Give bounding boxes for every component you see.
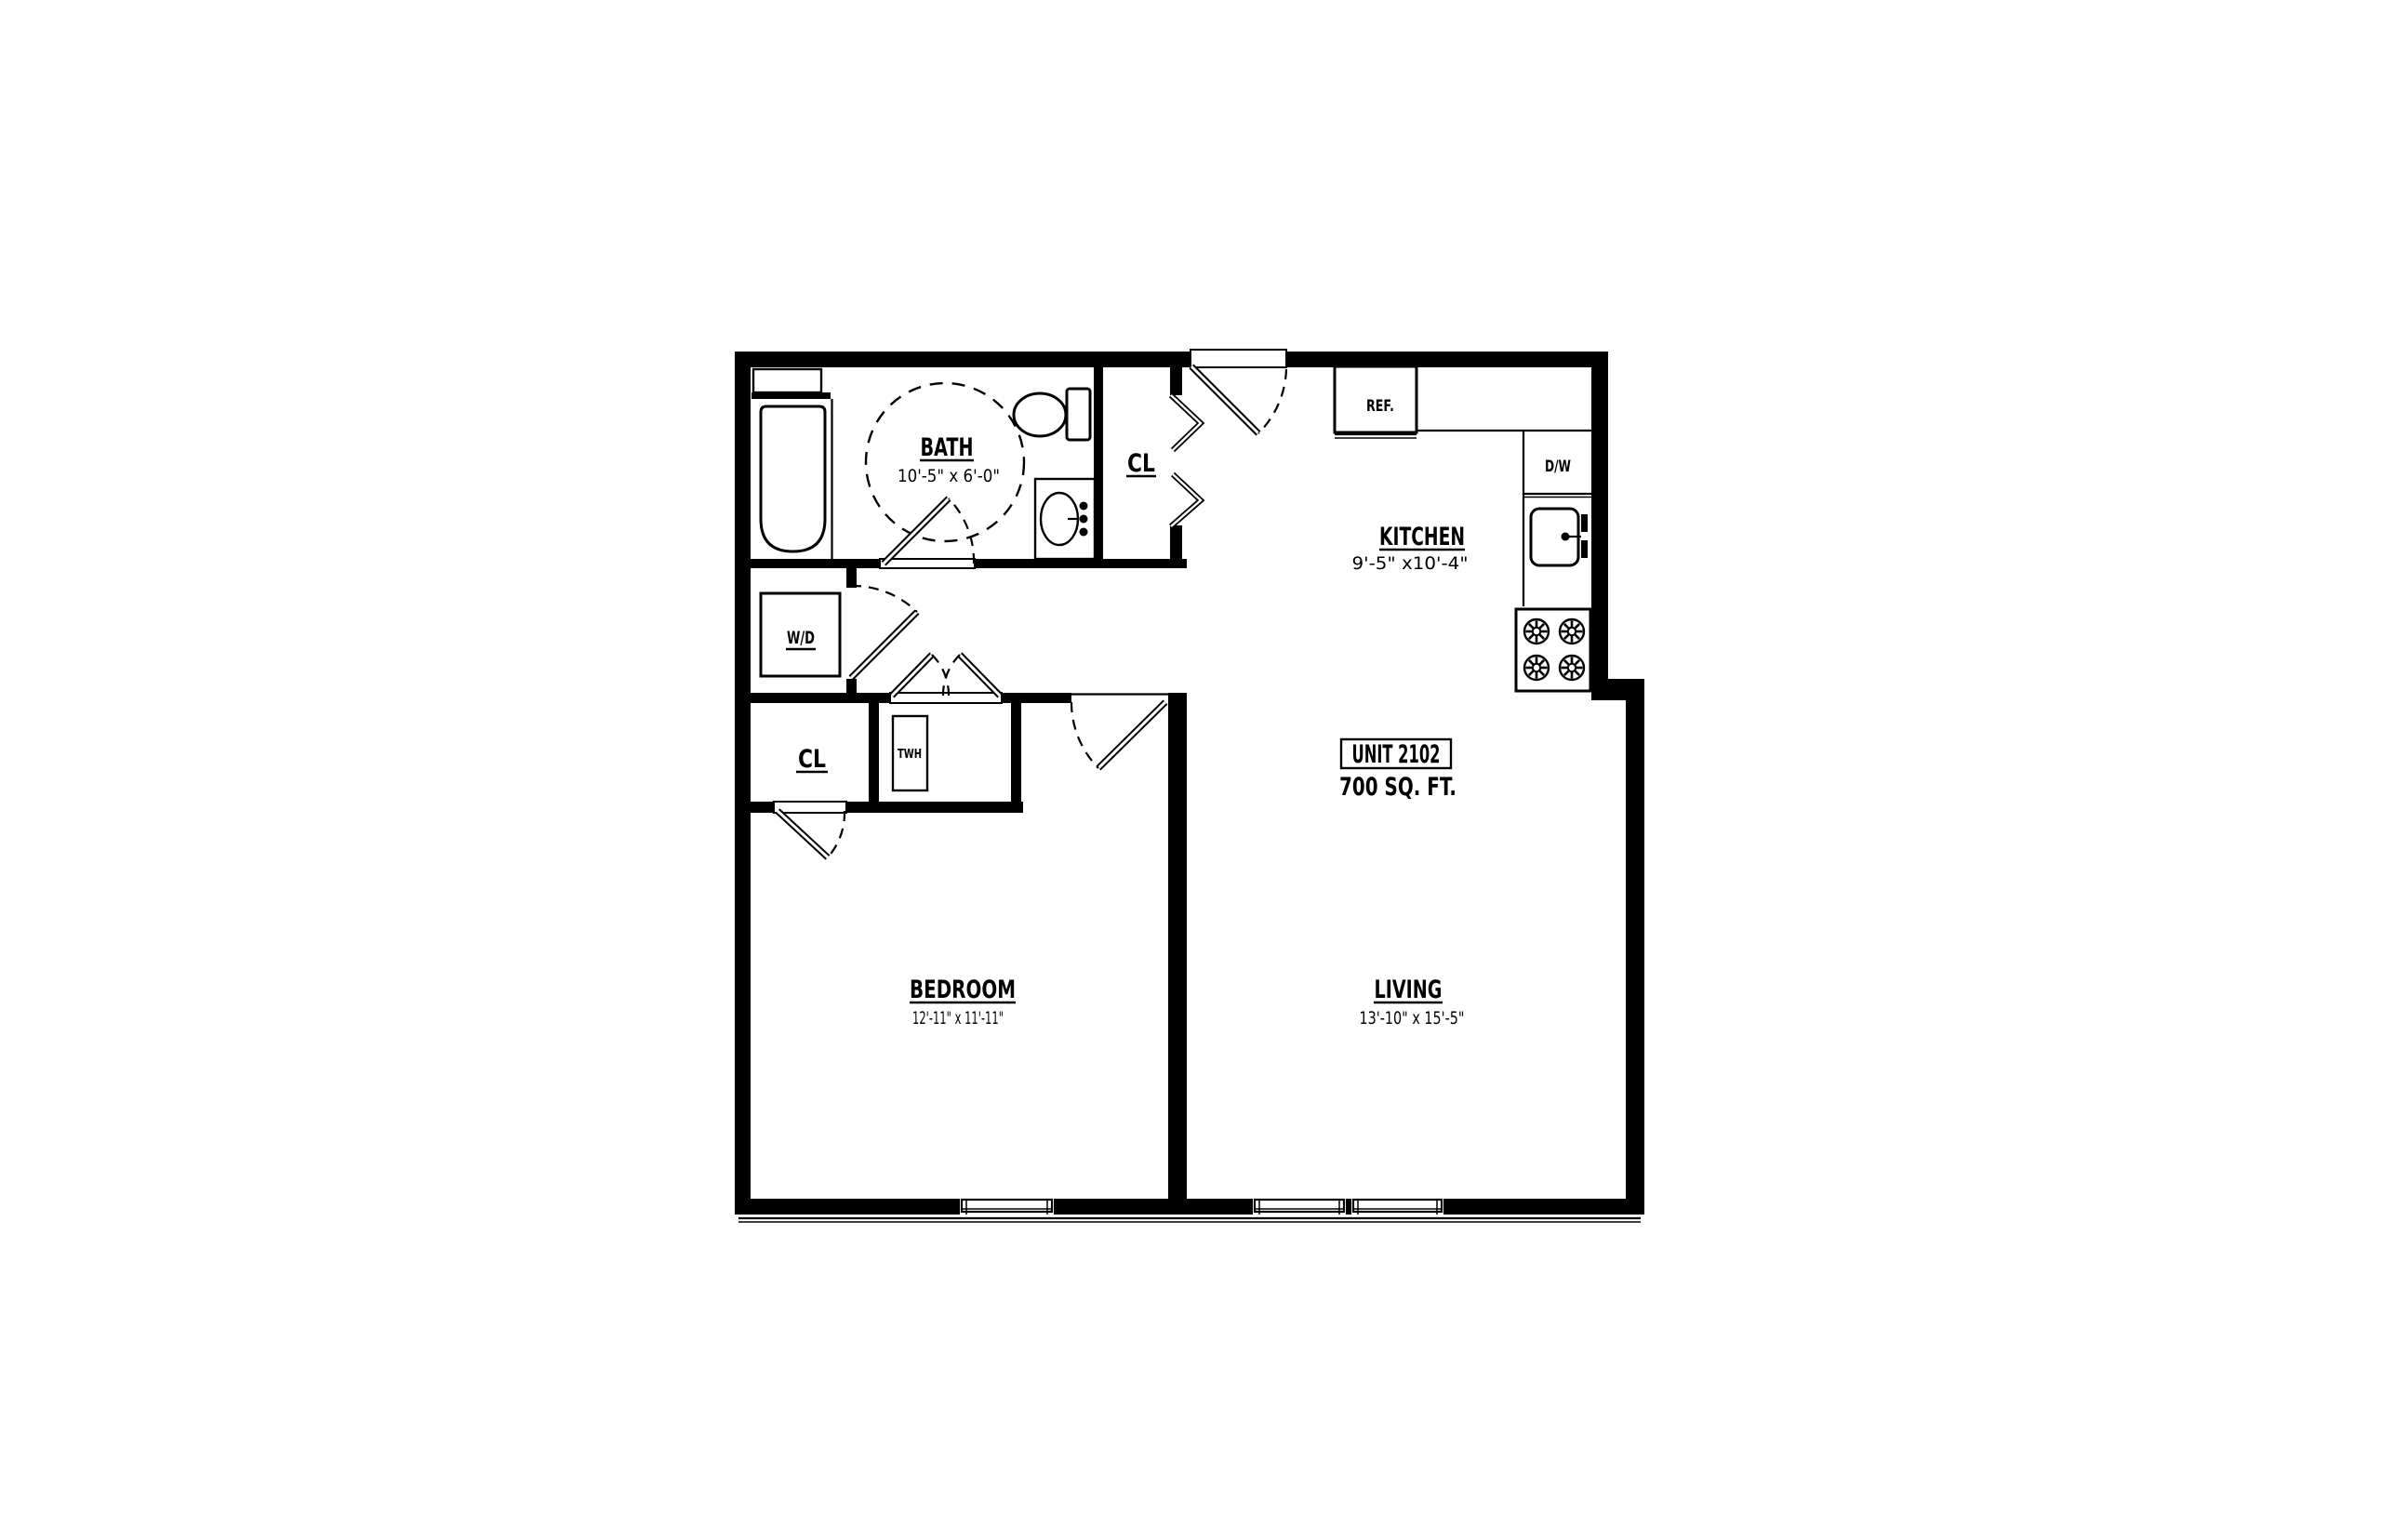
wall-top-left xyxy=(735,352,1190,367)
kitchen-faucet-handle-top xyxy=(1581,514,1588,532)
wall-entry-closet-stub-top xyxy=(1170,367,1182,395)
bedroom-closet-door-leaf-inner xyxy=(778,811,828,857)
bath-room-label: BATH xyxy=(921,433,974,462)
bathtub xyxy=(761,406,825,551)
entry-door-swing-arc xyxy=(1258,369,1286,433)
wall-twh-right xyxy=(1011,703,1021,813)
wall-cl-twh-divider xyxy=(869,703,879,802)
unit-area-label: 700 SQ. FT. xyxy=(1339,773,1457,802)
entry-closet-bifold-upper xyxy=(1171,395,1201,450)
tub-shelf-niche xyxy=(753,369,821,392)
wall-wd-stub-bottom xyxy=(846,679,857,693)
water-heater-label: TWH xyxy=(898,748,922,762)
entry-closet-bifold-lower xyxy=(1171,474,1201,526)
wall-bedroom-living-divider xyxy=(1168,693,1187,1199)
washer-dryer-door-leaf-inner xyxy=(851,612,917,678)
wall-top-right xyxy=(1286,352,1608,367)
entry-door xyxy=(1191,366,1286,433)
stove-burner-icon xyxy=(1560,656,1584,680)
kitchen-dims-label: 9'-5" x10'-4" xyxy=(1352,553,1469,574)
entry-door-recess xyxy=(1190,350,1286,367)
unit-number-label: UNIT 2102 xyxy=(1352,740,1441,769)
bedroom-door xyxy=(1071,702,1165,768)
bedroom-closet-threshold xyxy=(774,802,846,813)
bath-faucet-handle-top xyxy=(1080,502,1088,511)
bath-door-leaf-inner xyxy=(884,498,949,564)
twh-door-left-leaf-inner xyxy=(892,655,932,696)
bedroom-dims-label: 12'-11" x 11'-11" xyxy=(912,1008,1004,1029)
entry-closet-bifold-doors xyxy=(1171,395,1201,526)
living-window-1 xyxy=(1253,1199,1346,1215)
bath-door-threshold xyxy=(880,559,975,568)
doors xyxy=(778,366,1286,857)
water-heater-double-doors xyxy=(892,655,1000,696)
kitchen-faucet-spout xyxy=(1562,533,1570,541)
bath-dims-label: 10'-5" x 6'-0" xyxy=(898,466,1000,486)
wall-closet-south-stub xyxy=(751,802,774,813)
bedroom-closet-door xyxy=(778,811,845,857)
entry-closet-label: CL xyxy=(1127,449,1155,478)
dishwasher-label: D/W xyxy=(1545,458,1571,476)
stove-burner-icon xyxy=(1524,619,1549,644)
living-dims-label: 13'-10" x 15'-5" xyxy=(1360,1008,1465,1029)
wall-entry-closet-stub-bottom xyxy=(1170,525,1182,568)
wall-bath-south-right xyxy=(975,559,1187,568)
kitchen-faucet-handle-bottom xyxy=(1581,540,1588,558)
twh-door-right-swing-arc xyxy=(943,655,960,696)
wall-right-upper xyxy=(1591,352,1608,700)
wall-hall-south-left xyxy=(751,693,890,703)
twh-door-right-leaf-inner xyxy=(960,655,1000,696)
refrigerator-label: REF. xyxy=(1366,397,1394,416)
wall-right-lower xyxy=(1626,679,1644,1215)
bath-faucet-handle-bottom xyxy=(1080,528,1088,537)
wall-closet-south xyxy=(846,802,1023,813)
wall-wd-stub-top xyxy=(846,568,857,588)
stove-burner-icon xyxy=(1560,619,1584,644)
washer-dryer-door xyxy=(851,586,917,678)
living-room-label: LIVING xyxy=(1375,976,1443,1004)
wall-hall-south-right xyxy=(1002,693,1071,703)
washer-dryer-label: W/D xyxy=(787,628,815,648)
bedroom-window xyxy=(960,1199,1054,1215)
washer-dryer-door-swing-arc xyxy=(851,586,917,612)
bath-faucet-spout xyxy=(1080,515,1088,524)
floor-plan-page: BATH 10'-5" x 6'-0" KITCHEN 9'-5" x10'-4… xyxy=(0,0,2381,1540)
bedroom-room-label: BEDROOM xyxy=(910,976,1016,1004)
bedroom-closet-door-swing-arc xyxy=(828,811,845,857)
bath-door xyxy=(884,498,974,564)
floor-plan-drawing: BATH 10'-5" x 6'-0" KITCHEN 9'-5" x10'-4… xyxy=(0,0,2381,1540)
wall-left xyxy=(735,352,751,1215)
entry-closet-bifold-lower-inner xyxy=(1171,474,1201,526)
wall-bath-south-left xyxy=(751,559,880,568)
window-mullion xyxy=(1346,1199,1351,1215)
living-window-2 xyxy=(1351,1199,1443,1215)
toilet-tank xyxy=(1067,389,1090,440)
bedroom-door-swing-arc xyxy=(1071,702,1098,768)
bath-door-swing-arc xyxy=(949,498,974,564)
ada-turning-circle xyxy=(866,383,1024,541)
twh-doors-threshold xyxy=(890,693,1002,703)
bedroom-closet-label: CL xyxy=(798,745,826,774)
stove-burner-icon xyxy=(1524,656,1549,680)
kitchen-room-label: KITCHEN xyxy=(1379,523,1465,551)
toilet-bowl xyxy=(1014,393,1066,436)
bedroom-door-leaf-inner xyxy=(1098,702,1165,768)
wall-bottom xyxy=(735,1199,1644,1215)
